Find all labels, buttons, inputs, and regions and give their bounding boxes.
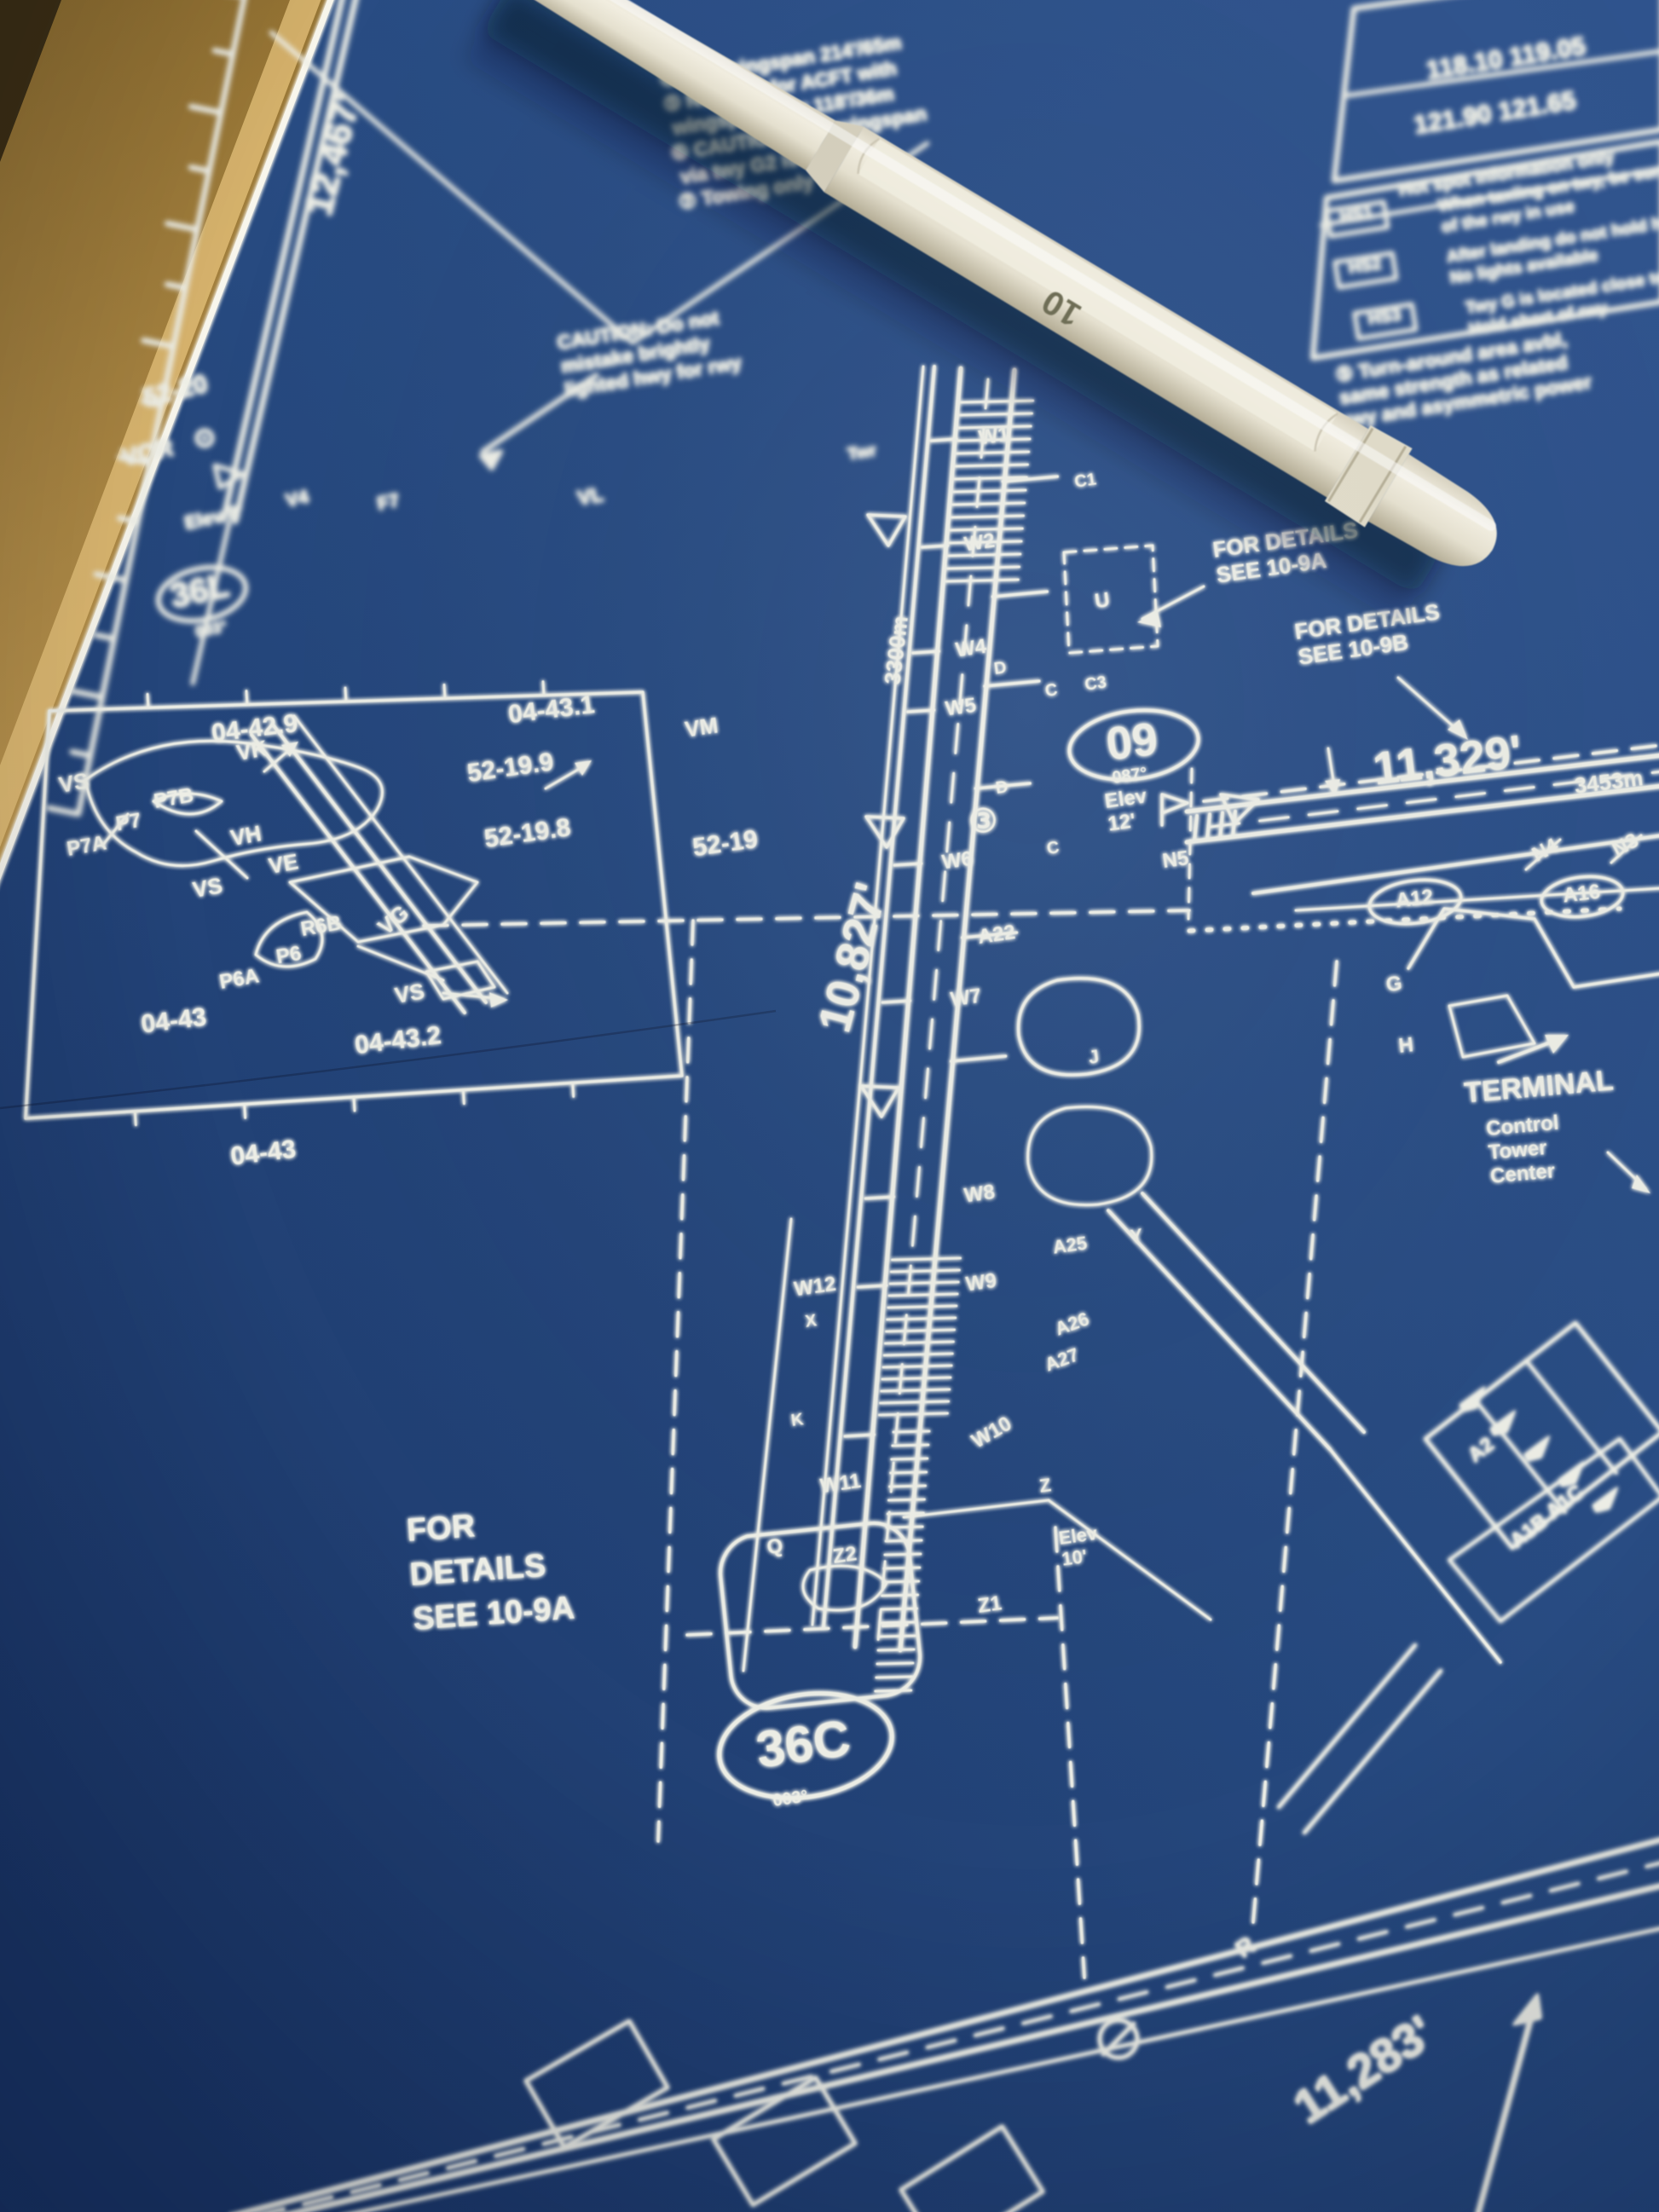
photo-vignette	[0, 0, 1659, 2212]
blueprint-canvas: 12,467'52-20VORElev 8'V4F7VL36L003°118.1…	[0, 0, 1659, 2212]
photo-of-blueprint: 12,467'52-20VORElev 8'V4F7VL36L003°118.1…	[0, 0, 1659, 2212]
